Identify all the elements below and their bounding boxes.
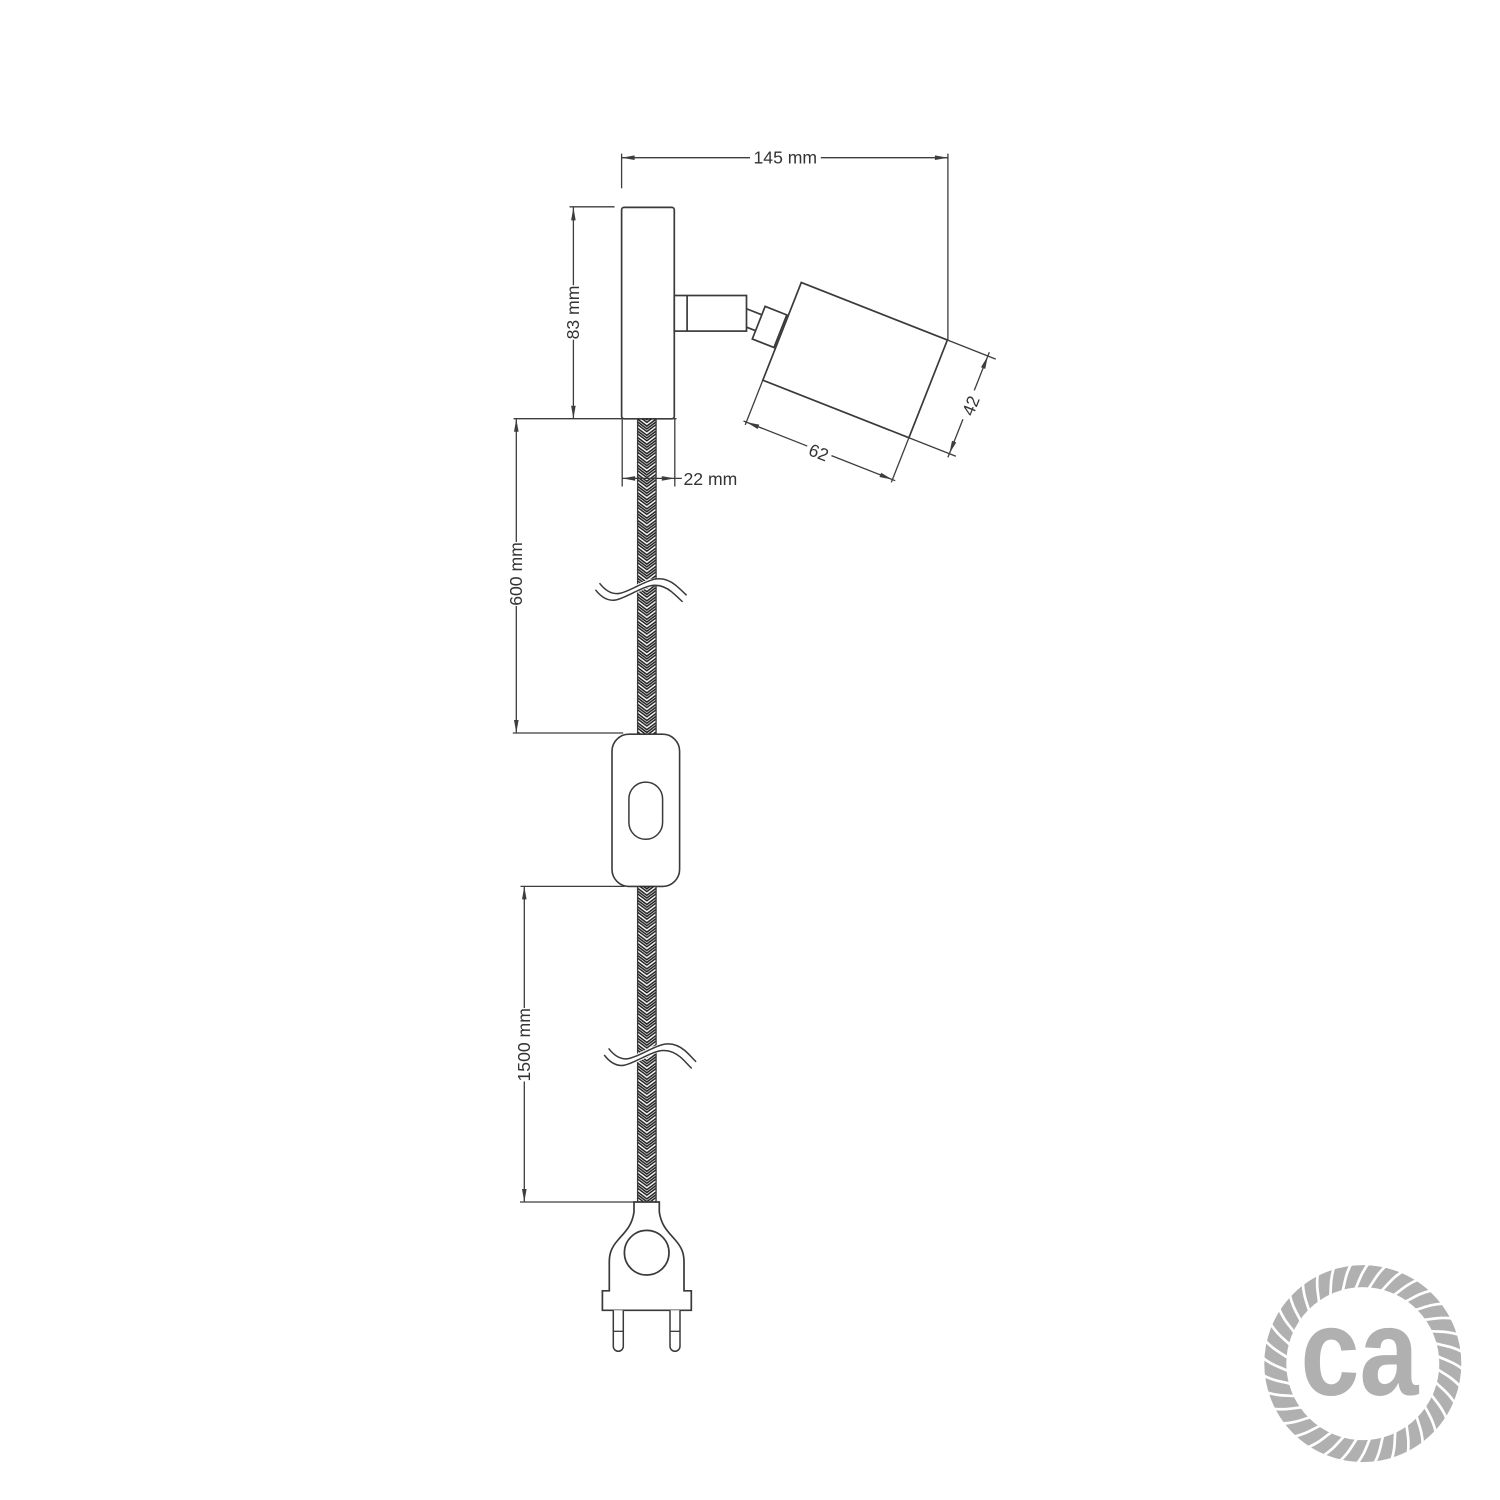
svg-text:83 mm: 83 mm [563,286,583,340]
svg-text:ca: ca [1301,1284,1420,1422]
svg-text:145 mm: 145 mm [754,147,818,167]
svg-text:600 mm: 600 mm [506,542,526,606]
svg-text:22 mm: 22 mm [684,469,738,489]
svg-text:1500 mm: 1500 mm [514,1008,534,1081]
